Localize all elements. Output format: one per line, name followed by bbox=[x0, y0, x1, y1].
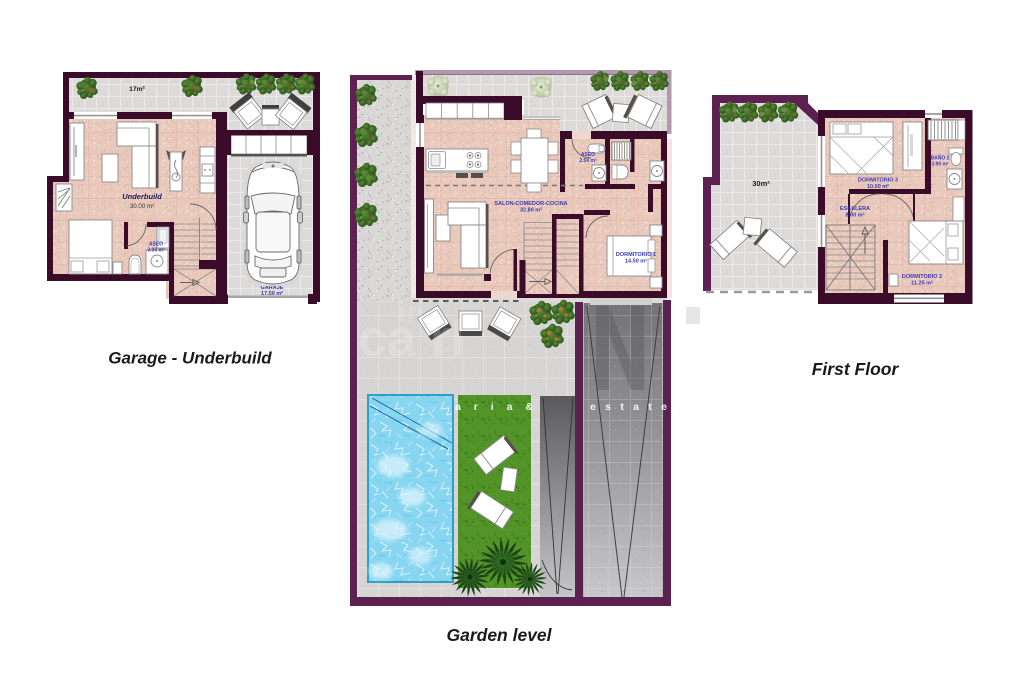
svg-text:DORMITORIO 1: DORMITORIO 1 bbox=[616, 252, 656, 258]
svg-text:10.00 m²: 10.00 m² bbox=[867, 183, 889, 190]
svg-text:ESCALERA: ESCALERA bbox=[840, 206, 870, 212]
svg-text:14.50 m²: 14.50 m² bbox=[625, 258, 647, 265]
svg-text:11.25 m²: 11.25 m² bbox=[911, 280, 933, 287]
svg-text:Garage - Underbuild: Garage - Underbuild bbox=[108, 349, 272, 368]
svg-text:2.50 m²: 2.50 m² bbox=[579, 158, 597, 164]
svg-text:32.80 m²: 32.80 m² bbox=[520, 207, 542, 214]
svg-text:in: in bbox=[398, 296, 425, 329]
svg-text:8.00 m²: 8.00 m² bbox=[846, 212, 865, 219]
svg-text:30m²: 30m² bbox=[752, 179, 770, 188]
svg-text:DORMITORIO 2: DORMITORIO 2 bbox=[902, 274, 942, 280]
svg-text:a r i a &: a r i a & bbox=[455, 401, 538, 413]
svg-text:Garden level: Garden level bbox=[446, 625, 552, 645]
svg-text:3.90 m²: 3.90 m² bbox=[931, 162, 949, 168]
svg-text:First Floor: First Floor bbox=[812, 359, 900, 379]
svg-text:BAÑO 2: BAÑO 2 bbox=[931, 155, 950, 162]
svg-text:30.00 m²: 30.00 m² bbox=[130, 203, 154, 210]
svg-text:e s t a t e: e s t a t e bbox=[590, 401, 670, 413]
svg-text:Underbuild: Underbuild bbox=[122, 192, 162, 201]
svg-text:17.50 m²: 17.50 m² bbox=[261, 290, 283, 297]
svg-text:SALON-COMEDOR-COCINA: SALON-COMEDOR-COCINA bbox=[494, 201, 567, 207]
svg-text:17m²: 17m² bbox=[129, 86, 146, 93]
svg-text:rl: rl bbox=[430, 310, 465, 368]
svg-text:3.00 m²: 3.00 m² bbox=[147, 248, 165, 254]
svg-text:DORMITORIO 3: DORMITORIO 3 bbox=[858, 178, 898, 184]
